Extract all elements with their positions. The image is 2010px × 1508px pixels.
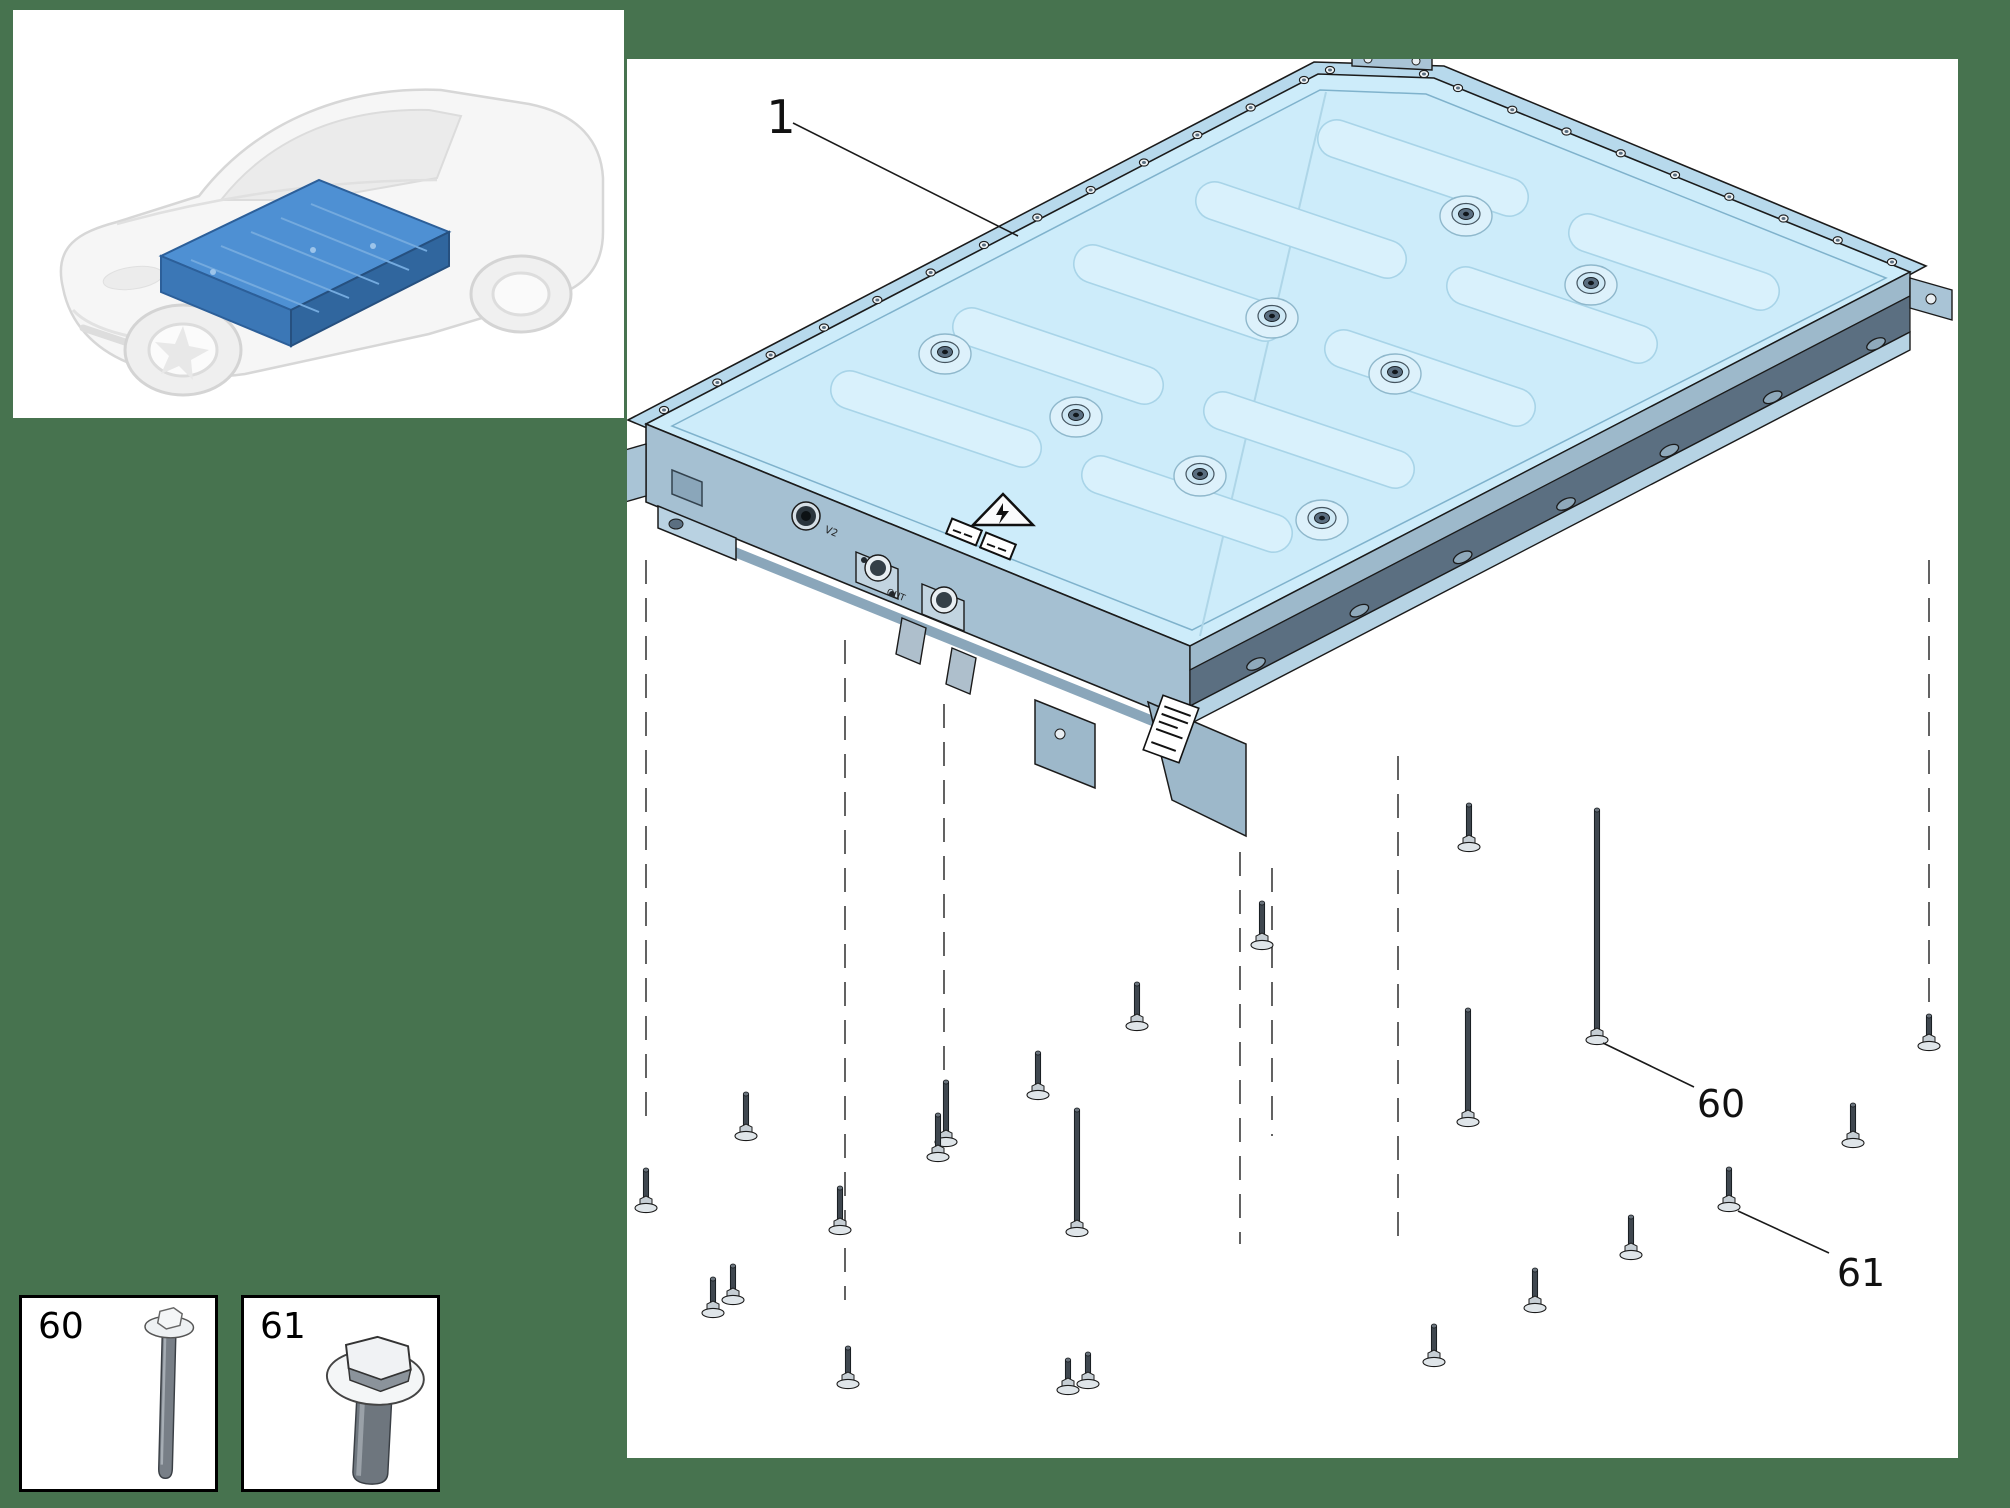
rim-screw [713,379,722,386]
rim-screw [1562,128,1571,135]
bolt-flange-head [837,1379,859,1388]
main-panel: V2 OUT [627,59,1958,1458]
bolt-tip [730,1264,735,1268]
rim-screw [1887,258,1896,265]
bolt[interactable] [1524,1268,1546,1313]
bolt-tip [1594,808,1599,812]
bolt[interactable] [1586,808,1608,1045]
bolt[interactable] [735,1092,757,1141]
rim-screw [926,269,935,276]
bolt-flange-head [702,1308,724,1317]
rim-screw [659,406,668,413]
bracket-hole [1412,59,1420,65]
bolt-tip [1926,1014,1931,1018]
bolt-shaft [1465,1010,1470,1115]
bolt-tip [1628,1215,1633,1219]
bolt[interactable] [837,1346,859,1389]
tab-hole [669,519,683,529]
connector-bolt [861,557,867,563]
rim-screw [1508,106,1517,113]
inset-battery-dot [210,269,216,275]
rim-screw [1193,131,1202,138]
rim-screw [1616,150,1625,157]
bolt-flange-head [635,1203,657,1212]
bolt-flange-head [1458,842,1480,851]
inset-panel [13,10,624,418]
tab-hole [1926,294,1936,304]
bolt[interactable] [1457,1008,1479,1127]
bolt[interactable] [1027,1051,1049,1100]
bolt[interactable] [635,1168,657,1213]
bolt[interactable] [1077,1352,1099,1389]
rim-screw [819,324,828,331]
bolt-tip [1035,1051,1040,1055]
bolt-flange-head [1620,1250,1642,1259]
legend-box-60[interactable]: 60 [19,1295,218,1492]
bolt-tip [1259,901,1264,905]
bolt60-hex-head [158,1307,183,1329]
service-port-hole [801,511,811,521]
vent-cap [1174,456,1226,496]
bolt-shaft [943,1082,948,1135]
inset-battery-dot [310,247,316,253]
bolt[interactable] [1251,901,1273,950]
rim-screw [1453,84,1462,91]
rim-screw [1246,104,1255,111]
bolt-tip [743,1092,748,1096]
rim-screw [1725,193,1734,200]
rim-screw [1833,237,1842,244]
connector-bore [936,592,952,608]
battery-pack: V2 OUT [627,59,1952,836]
callout-1[interactable]: 1 [766,90,795,144]
car-rear-rim [493,273,549,315]
rim-screw [1670,171,1679,178]
bolt-tip [1431,1324,1436,1328]
bolt-flange-head [1066,1227,1088,1236]
rim-screw [873,296,882,303]
bolt[interactable] [1842,1103,1864,1148]
vent-cap [1369,354,1421,394]
bolt-flange-head [1918,1041,1940,1050]
inset-battery-dot [370,243,376,249]
bolt-tip [845,1346,850,1350]
bolt-flange-head [1457,1117,1479,1126]
legend-label-61: 61 [260,1306,306,1347]
bolt-flange-head [1077,1379,1099,1388]
bolt-tip [1074,1108,1079,1112]
bolt[interactable] [722,1264,744,1305]
parts-diagram-page: V2 OUT [0,0,2010,1508]
bolt-flange-head [1842,1138,1864,1147]
bolt[interactable] [1620,1215,1642,1260]
vent-cap [1565,265,1617,305]
callout-60[interactable]: 60 [1697,1082,1745,1126]
battery-pack-diagram: V2 OUT [627,59,1958,1458]
bolt-flange-head [735,1131,757,1140]
bolt-tip [935,1113,940,1117]
bolt[interactable] [702,1277,724,1318]
bolt-tip [1065,1358,1070,1362]
bolt-shaft [1594,810,1599,1033]
bolt-flange-head [1057,1385,1079,1394]
bolt-flange-head [927,1152,949,1161]
bolt-flange-head [1524,1303,1546,1312]
bolt[interactable] [1423,1324,1445,1367]
leader-line-1 [793,123,1018,236]
left-corner-tab [627,444,646,504]
bolt-tip [1465,1008,1470,1012]
bolt-tip [710,1277,715,1281]
legend-box-61[interactable]: 61 [241,1295,440,1492]
bolt[interactable] [1126,982,1148,1031]
bolt[interactable] [829,1186,851,1235]
bolt-flange-head [1251,940,1273,949]
bolt-tip [1134,982,1139,986]
rim-screw [1086,186,1095,193]
rim-screw [1419,70,1428,77]
bolt-tip [837,1186,842,1190]
bolt[interactable] [1066,1108,1088,1237]
bolt-flange-head [1718,1202,1740,1211]
bolt-flange-head [1126,1021,1148,1030]
bottom-bracket [1035,700,1095,788]
bolt-flange-head [829,1225,851,1234]
bolt-tip [1532,1268,1537,1272]
vent-cap [919,334,971,374]
bolt[interactable] [1458,803,1480,852]
bolt-tip [1726,1167,1731,1171]
bolt-tip [1466,803,1471,807]
bracket-hole [1055,729,1065,739]
inset-illustration [13,10,624,418]
rim-screw [1139,159,1148,166]
rim-screw [1779,215,1788,222]
bolt-tip [1085,1352,1090,1356]
bolt-tip [1850,1103,1855,1107]
bolt-shaft [1074,1110,1079,1225]
bolt[interactable] [1057,1358,1079,1395]
bolt[interactable] [1718,1167,1740,1212]
rim-screw [1325,66,1334,73]
leader-line-60 [1603,1043,1694,1087]
rim-screw [979,241,988,248]
callout-61[interactable]: 61 [1837,1251,1885,1295]
rim-screw [1033,214,1042,221]
vent-cap [1296,500,1348,540]
vent-cap [1440,196,1492,236]
bolt-flange-head [722,1295,744,1304]
vent-cap [1050,397,1102,437]
bolt-tip [943,1080,948,1084]
legend-label-60: 60 [38,1306,84,1347]
bolt[interactable] [1918,1014,1940,1051]
bolt-tip [643,1168,648,1172]
connector-plug [946,648,976,694]
bracket-hole [1364,59,1372,63]
rim-screw [1299,76,1308,83]
vent-cap [1246,298,1298,338]
bolt-flange-head [1027,1090,1049,1099]
bolt-flange-head [1423,1357,1445,1366]
connector-bore [870,560,886,576]
rim-screw [766,351,775,358]
leader-line-61 [1738,1211,1829,1253]
